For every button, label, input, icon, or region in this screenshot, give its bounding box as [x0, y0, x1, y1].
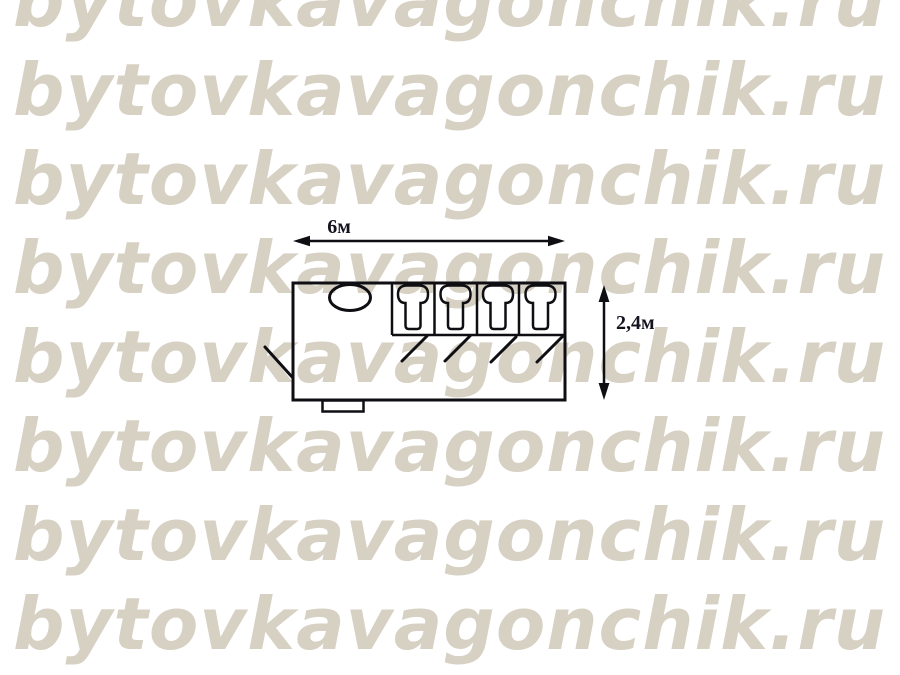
- door-swing-line: [537, 337, 562, 362]
- floorplan-diagram: 6м 2,4м: [0, 0, 900, 675]
- toilet-icon: [526, 286, 556, 330]
- toilet-icon: [398, 286, 428, 330]
- entrance-door-line: [265, 347, 293, 378]
- door-swing-line: [402, 336, 427, 361]
- height-dimension-arrow: 2,4м: [599, 285, 655, 400]
- cabin-outline: [293, 283, 565, 400]
- sink-icon: [330, 285, 371, 311]
- height-dimension-label: 2,4м: [616, 312, 655, 334]
- toilet-icon: [441, 286, 471, 330]
- stall-door-swings: [402, 336, 562, 362]
- door-swing-line: [491, 337, 516, 362]
- width-dimension-label: 6м: [327, 216, 351, 238]
- entry-step: [323, 401, 364, 412]
- door-swing-line: [445, 336, 470, 361]
- toilet-icon: [483, 286, 513, 330]
- width-dimension-arrow: 6м: [293, 216, 565, 246]
